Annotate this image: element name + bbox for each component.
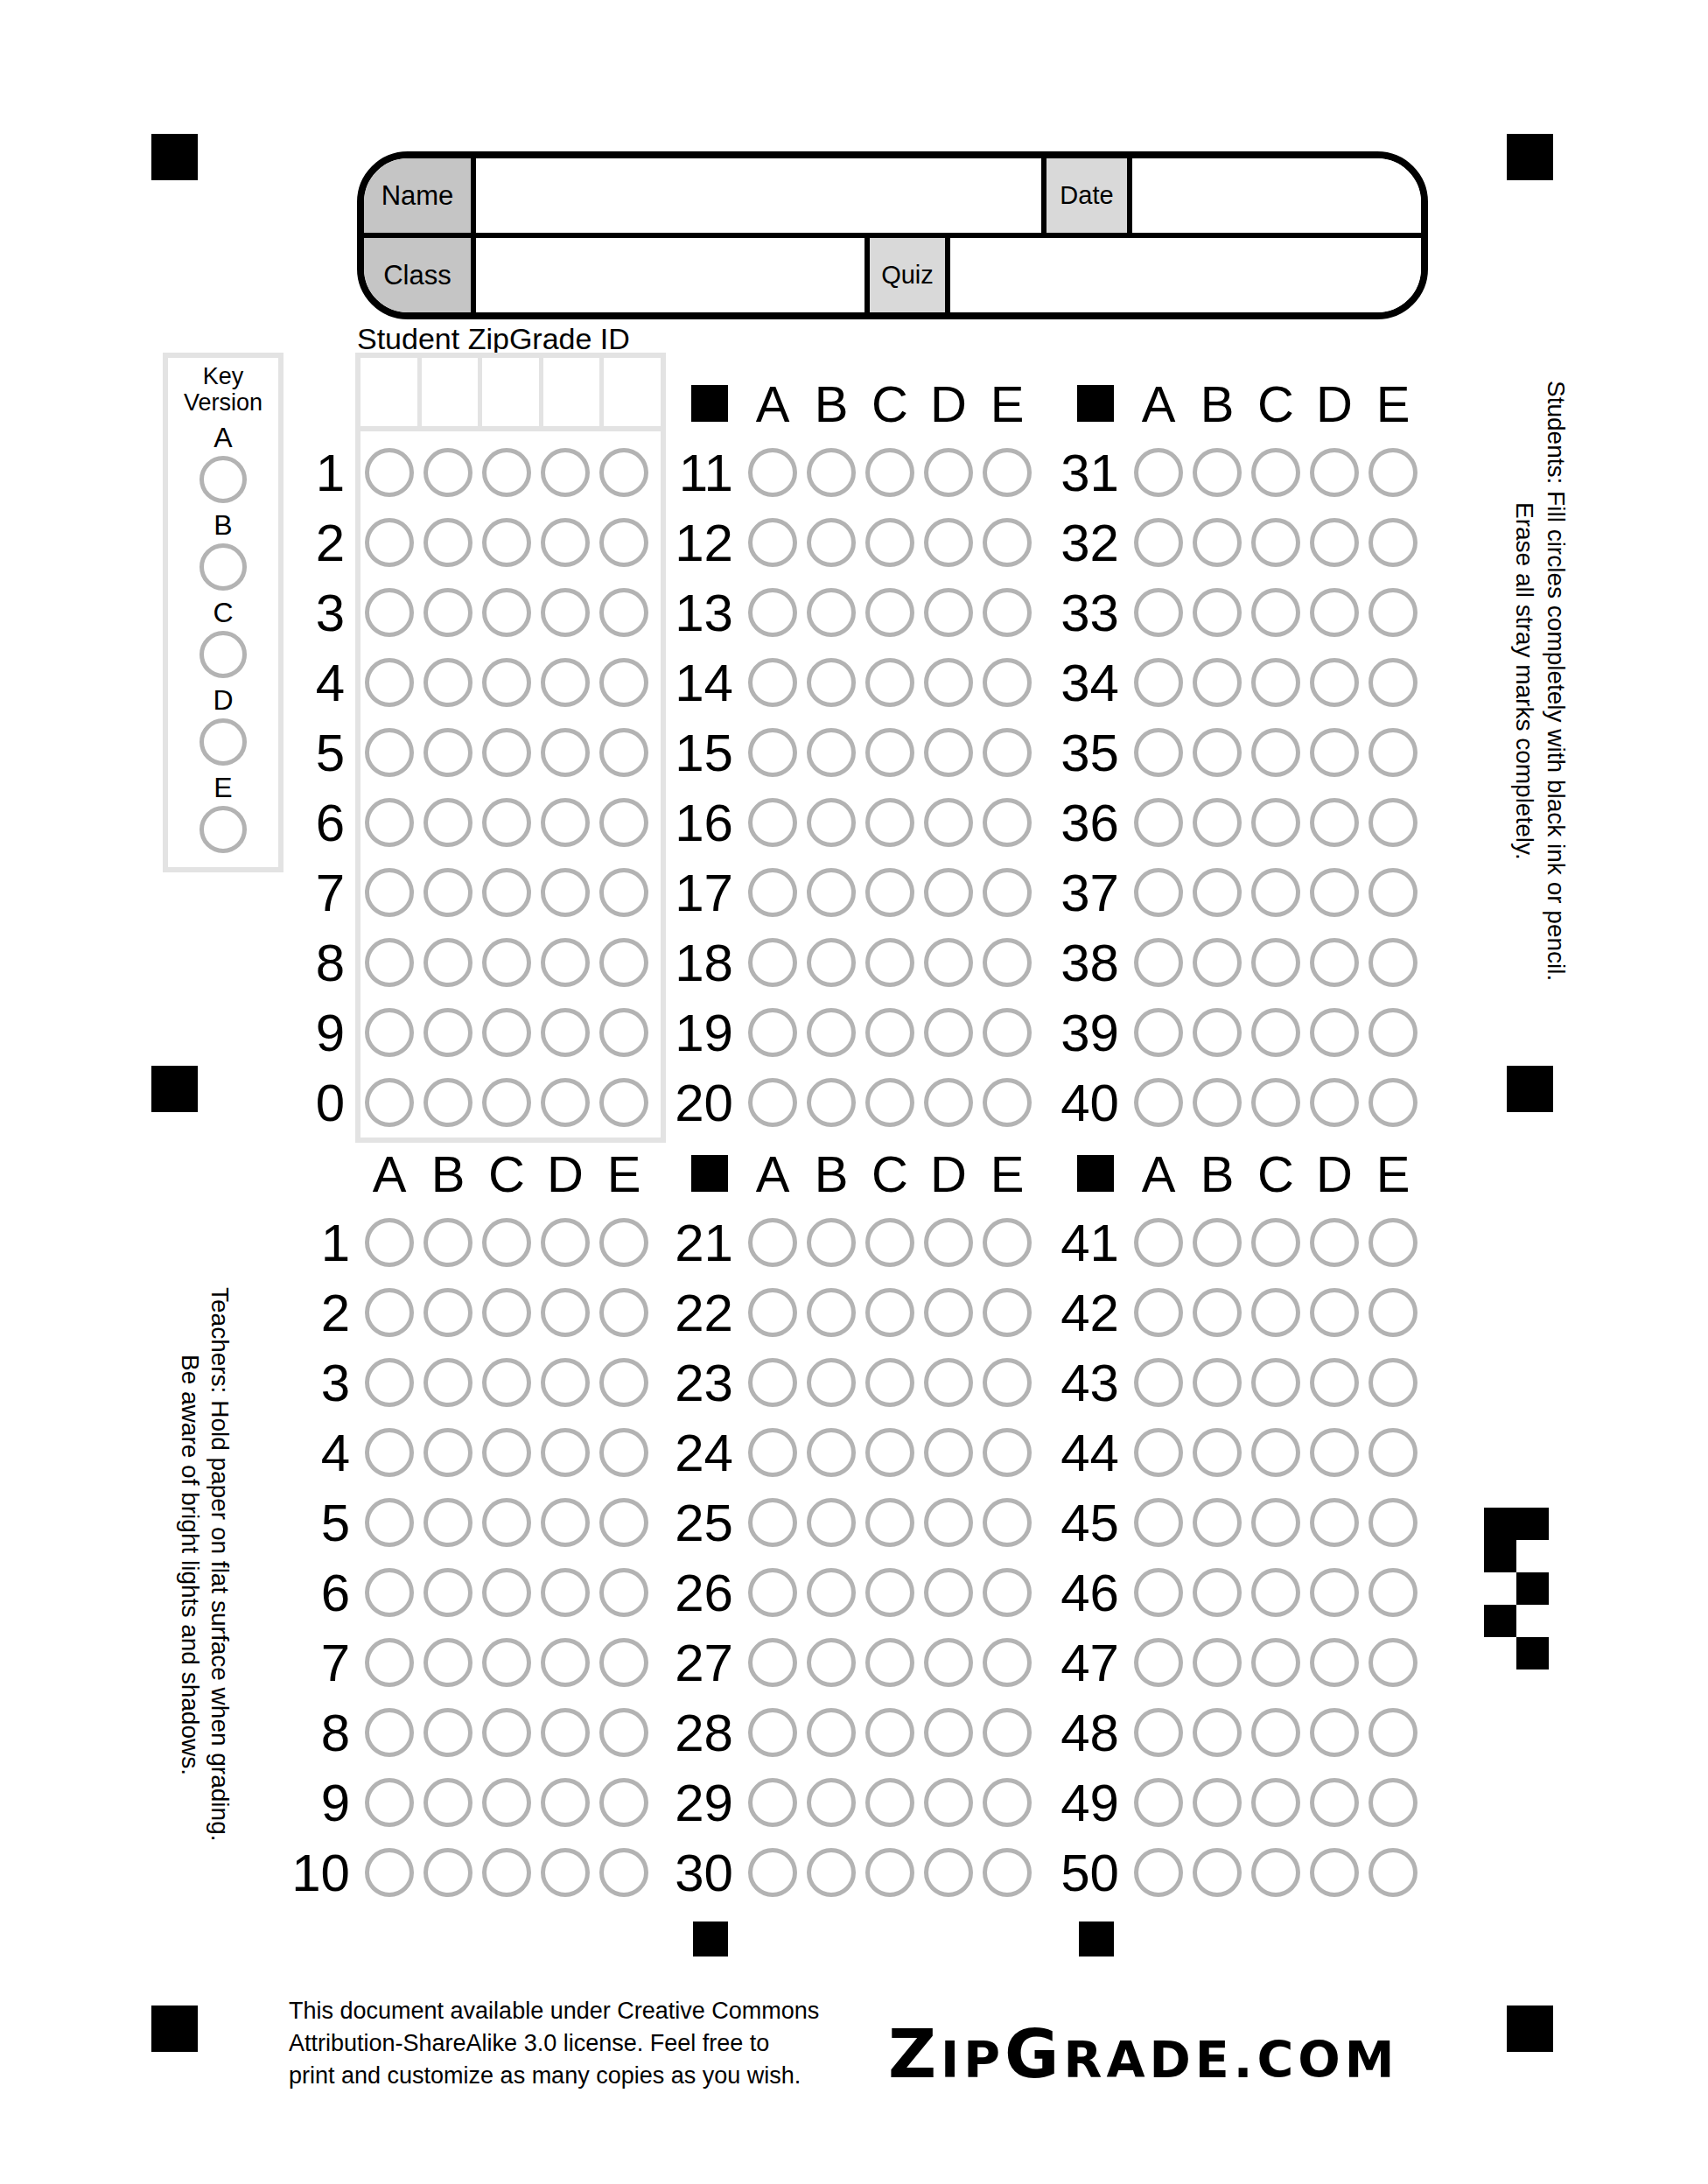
answer-bubble-C[interactable]	[1251, 1288, 1300, 1337]
answer-bubble-E[interactable]	[599, 1568, 648, 1617]
answer-bubble-D[interactable]	[924, 1568, 973, 1617]
answer-bubble-D[interactable]	[541, 1498, 590, 1547]
answer-bubble-C[interactable]	[1251, 1218, 1300, 1267]
answer-bubble-D[interactable]	[1310, 1708, 1359, 1757]
name-input[interactable]	[476, 158, 1041, 233]
answer-bubble-D[interactable]	[924, 1078, 973, 1127]
id-digit-write-box[interactable]	[599, 358, 661, 426]
answer-bubble-C[interactable]	[1251, 868, 1300, 917]
answer-bubble-E[interactable]	[599, 1428, 648, 1477]
answer-bubble-C[interactable]	[865, 1498, 914, 1547]
answer-bubble-A[interactable]	[1134, 1288, 1183, 1337]
answer-bubble-E[interactable]	[1368, 868, 1417, 917]
answer-bubble-B[interactable]	[1193, 1778, 1242, 1827]
answer-bubble-E[interactable]	[599, 1498, 648, 1547]
answer-bubble-E[interactable]	[1368, 728, 1417, 777]
answer-bubble-D[interactable]	[541, 1288, 590, 1337]
answer-bubble-E[interactable]	[1368, 938, 1417, 987]
answer-bubble-A[interactable]	[1134, 1078, 1183, 1127]
answer-bubble-D[interactable]	[541, 1848, 590, 1897]
answer-bubble-B[interactable]	[423, 1778, 472, 1827]
answer-bubble-A[interactable]	[748, 1778, 797, 1827]
answer-bubble-C[interactable]	[1251, 1078, 1300, 1127]
answer-bubble-A[interactable]	[748, 658, 797, 707]
answer-bubble-A[interactable]	[1134, 1778, 1183, 1827]
answer-bubble-C[interactable]	[482, 1288, 531, 1337]
id-digit-bubble[interactable]	[423, 448, 472, 497]
answer-bubble-E[interactable]	[983, 938, 1032, 987]
answer-bubble-D[interactable]	[541, 1708, 590, 1757]
answer-bubble-B[interactable]	[1193, 798, 1242, 847]
id-digit-bubble[interactable]	[599, 518, 648, 567]
id-digit-bubble[interactable]	[423, 1078, 472, 1127]
answer-bubble-C[interactable]	[865, 1218, 914, 1267]
id-digit-bubble[interactable]	[423, 588, 472, 637]
answer-bubble-D[interactable]	[1310, 658, 1359, 707]
id-digit-write-box[interactable]	[478, 358, 539, 426]
answer-bubble-D[interactable]	[1310, 1288, 1359, 1337]
answer-bubble-D[interactable]	[924, 1778, 973, 1827]
class-input[interactable]	[476, 238, 864, 312]
answer-bubble-C[interactable]	[1251, 938, 1300, 987]
answer-bubble-E[interactable]	[983, 518, 1032, 567]
answer-bubble-E[interactable]	[1368, 1288, 1417, 1337]
answer-bubble-A[interactable]	[1134, 1428, 1183, 1477]
id-digit-bubble[interactable]	[541, 798, 590, 847]
answer-bubble-B[interactable]	[1193, 1008, 1242, 1057]
answer-bubble-A[interactable]	[365, 1638, 414, 1687]
answer-bubble-B[interactable]	[423, 1358, 472, 1407]
answer-bubble-B[interactable]	[807, 1078, 856, 1127]
id-digit-bubble[interactable]	[482, 938, 531, 987]
answer-bubble-D[interactable]	[1310, 1008, 1359, 1057]
answer-bubble-B[interactable]	[1193, 658, 1242, 707]
answer-bubble-B[interactable]	[1193, 1288, 1242, 1337]
answer-bubble-E[interactable]	[599, 1848, 648, 1897]
answer-bubble-B[interactable]	[423, 1288, 472, 1337]
answer-bubble-C[interactable]	[482, 1428, 531, 1477]
id-digit-bubble[interactable]	[599, 868, 648, 917]
id-digit-bubble[interactable]	[423, 1008, 472, 1057]
key-version-bubble-C[interactable]	[199, 631, 247, 678]
id-digit-bubble[interactable]	[482, 588, 531, 637]
id-digit-bubble[interactable]	[423, 728, 472, 777]
answer-bubble-B[interactable]	[807, 1778, 856, 1827]
answer-bubble-C[interactable]	[482, 1708, 531, 1757]
answer-bubble-E[interactable]	[599, 1358, 648, 1407]
answer-bubble-B[interactable]	[423, 1498, 472, 1547]
id-digit-bubble[interactable]	[482, 798, 531, 847]
answer-bubble-A[interactable]	[1134, 1008, 1183, 1057]
answer-bubble-E[interactable]	[1368, 798, 1417, 847]
answer-bubble-E[interactable]	[983, 1848, 1032, 1897]
answer-bubble-E[interactable]	[983, 658, 1032, 707]
answer-bubble-B[interactable]	[423, 1568, 472, 1617]
answer-bubble-E[interactable]	[983, 868, 1032, 917]
id-digit-bubble[interactable]	[423, 868, 472, 917]
answer-bubble-D[interactable]	[924, 1358, 973, 1407]
answer-bubble-A[interactable]	[748, 938, 797, 987]
answer-bubble-A[interactable]	[748, 1008, 797, 1057]
id-digit-bubble[interactable]	[365, 518, 414, 567]
id-digit-write-box[interactable]	[539, 358, 600, 426]
answer-bubble-A[interactable]	[1134, 588, 1183, 637]
answer-bubble-B[interactable]	[1193, 1428, 1242, 1477]
answer-bubble-B[interactable]	[1193, 448, 1242, 497]
answer-bubble-D[interactable]	[1310, 798, 1359, 847]
answer-bubble-C[interactable]	[1251, 798, 1300, 847]
answer-bubble-E[interactable]	[1368, 658, 1417, 707]
answer-bubble-E[interactable]	[983, 1638, 1032, 1687]
answer-bubble-A[interactable]	[748, 1638, 797, 1687]
answer-bubble-E[interactable]	[1368, 1638, 1417, 1687]
answer-bubble-A[interactable]	[748, 1708, 797, 1757]
answer-bubble-B[interactable]	[807, 1638, 856, 1687]
answer-bubble-E[interactable]	[983, 1008, 1032, 1057]
answer-bubble-D[interactable]	[1310, 588, 1359, 637]
answer-bubble-D[interactable]	[1310, 1638, 1359, 1687]
answer-bubble-B[interactable]	[423, 1848, 472, 1897]
answer-bubble-B[interactable]	[423, 1708, 472, 1757]
answer-bubble-A[interactable]	[1134, 798, 1183, 847]
id-digit-bubble[interactable]	[365, 588, 414, 637]
answer-bubble-A[interactable]	[365, 1568, 414, 1617]
answer-bubble-D[interactable]	[1310, 1568, 1359, 1617]
answer-bubble-C[interactable]	[865, 518, 914, 567]
answer-bubble-A[interactable]	[748, 518, 797, 567]
answer-bubble-C[interactable]	[865, 868, 914, 917]
answer-bubble-D[interactable]	[924, 1848, 973, 1897]
id-digit-bubble[interactable]	[423, 938, 472, 987]
id-digit-bubble[interactable]	[599, 1078, 648, 1127]
answer-bubble-D[interactable]	[1310, 1428, 1359, 1477]
answer-bubble-C[interactable]	[865, 1008, 914, 1057]
answer-bubble-B[interactable]	[1193, 1358, 1242, 1407]
answer-bubble-A[interactable]	[1134, 868, 1183, 917]
answer-bubble-A[interactable]	[748, 868, 797, 917]
answer-bubble-D[interactable]	[924, 1218, 973, 1267]
answer-bubble-E[interactable]	[983, 1778, 1032, 1827]
answer-bubble-C[interactable]	[865, 1778, 914, 1827]
answer-bubble-B[interactable]	[1193, 938, 1242, 987]
answer-bubble-B[interactable]	[807, 518, 856, 567]
answer-bubble-E[interactable]	[1368, 1428, 1417, 1477]
answer-bubble-B[interactable]	[807, 1568, 856, 1617]
id-digit-bubble[interactable]	[482, 658, 531, 707]
answer-bubble-E[interactable]	[983, 1358, 1032, 1407]
answer-bubble-A[interactable]	[365, 1848, 414, 1897]
answer-bubble-D[interactable]	[924, 1708, 973, 1757]
answer-bubble-D[interactable]	[541, 1778, 590, 1827]
answer-bubble-B[interactable]	[1193, 1218, 1242, 1267]
id-digit-bubble[interactable]	[365, 1078, 414, 1127]
id-digit-bubble[interactable]	[482, 448, 531, 497]
answer-bubble-E[interactable]	[983, 1498, 1032, 1547]
answer-bubble-C[interactable]	[1251, 658, 1300, 707]
id-digit-bubble[interactable]	[365, 448, 414, 497]
answer-bubble-A[interactable]	[748, 1218, 797, 1267]
answer-bubble-A[interactable]	[1134, 938, 1183, 987]
answer-bubble-C[interactable]	[1251, 1568, 1300, 1617]
answer-bubble-A[interactable]	[1134, 1708, 1183, 1757]
id-digit-bubble[interactable]	[541, 1008, 590, 1057]
answer-bubble-D[interactable]	[924, 1008, 973, 1057]
answer-bubble-B[interactable]	[1193, 1568, 1242, 1617]
answer-bubble-B[interactable]	[807, 728, 856, 777]
id-digit-bubble[interactable]	[365, 938, 414, 987]
answer-bubble-D[interactable]	[924, 728, 973, 777]
answer-bubble-E[interactable]	[1368, 1358, 1417, 1407]
answer-bubble-A[interactable]	[748, 1568, 797, 1617]
answer-bubble-A[interactable]	[748, 1848, 797, 1897]
id-digit-bubble[interactable]	[423, 658, 472, 707]
answer-bubble-B[interactable]	[1193, 1498, 1242, 1547]
answer-bubble-B[interactable]	[423, 1218, 472, 1267]
answer-bubble-C[interactable]	[865, 1568, 914, 1617]
id-digit-bubble[interactable]	[423, 798, 472, 847]
answer-bubble-A[interactable]	[1134, 1638, 1183, 1687]
answer-bubble-B[interactable]	[1193, 868, 1242, 917]
answer-bubble-C[interactable]	[865, 728, 914, 777]
id-digit-bubble[interactable]	[541, 938, 590, 987]
answer-bubble-E[interactable]	[983, 1708, 1032, 1757]
answer-bubble-E[interactable]	[983, 1288, 1032, 1337]
answer-bubble-C[interactable]	[865, 1288, 914, 1337]
id-digit-bubble[interactable]	[599, 1008, 648, 1057]
id-digit-bubble[interactable]	[599, 728, 648, 777]
answer-bubble-A[interactable]	[748, 1498, 797, 1547]
answer-bubble-A[interactable]	[1134, 1568, 1183, 1617]
date-input[interactable]	[1132, 158, 1421, 233]
answer-bubble-C[interactable]	[482, 1848, 531, 1897]
answer-bubble-C[interactable]	[865, 448, 914, 497]
answer-bubble-D[interactable]	[1310, 1778, 1359, 1827]
id-digit-bubble[interactable]	[541, 518, 590, 567]
answer-bubble-E[interactable]	[1368, 1568, 1417, 1617]
answer-bubble-D[interactable]	[1310, 1498, 1359, 1547]
answer-bubble-A[interactable]	[748, 728, 797, 777]
answer-bubble-E[interactable]	[983, 588, 1032, 637]
answer-bubble-A[interactable]	[1134, 658, 1183, 707]
answer-bubble-C[interactable]	[1251, 518, 1300, 567]
answer-bubble-E[interactable]	[599, 1218, 648, 1267]
answer-bubble-E[interactable]	[1368, 588, 1417, 637]
answer-bubble-D[interactable]	[924, 1428, 973, 1477]
answer-bubble-A[interactable]	[365, 1358, 414, 1407]
answer-bubble-C[interactable]	[1251, 1848, 1300, 1897]
answer-bubble-D[interactable]	[1310, 1358, 1359, 1407]
answer-bubble-B[interactable]	[1193, 518, 1242, 567]
id-digit-bubble[interactable]	[482, 1078, 531, 1127]
id-digit-write-box[interactable]	[417, 358, 479, 426]
key-version-bubble-B[interactable]	[199, 543, 247, 591]
answer-bubble-B[interactable]	[807, 1358, 856, 1407]
id-digit-bubble[interactable]	[541, 658, 590, 707]
answer-bubble-C[interactable]	[865, 938, 914, 987]
answer-bubble-B[interactable]	[1193, 1638, 1242, 1687]
answer-bubble-A[interactable]	[1134, 1358, 1183, 1407]
answer-bubble-D[interactable]	[924, 518, 973, 567]
answer-bubble-C[interactable]	[482, 1638, 531, 1687]
answer-bubble-A[interactable]	[1134, 1498, 1183, 1547]
answer-bubble-E[interactable]	[1368, 1498, 1417, 1547]
key-version-bubble-A[interactable]	[199, 456, 247, 503]
answer-bubble-B[interactable]	[1193, 1708, 1242, 1757]
answer-bubble-E[interactable]	[983, 728, 1032, 777]
answer-bubble-C[interactable]	[1251, 1428, 1300, 1477]
answer-bubble-B[interactable]	[423, 1428, 472, 1477]
answer-bubble-B[interactable]	[807, 588, 856, 637]
id-digit-bubble[interactable]	[365, 658, 414, 707]
answer-bubble-B[interactable]	[1193, 1848, 1242, 1897]
answer-bubble-C[interactable]	[1251, 1708, 1300, 1757]
answer-bubble-A[interactable]	[748, 798, 797, 847]
answer-bubble-E[interactable]	[983, 1218, 1032, 1267]
answer-bubble-A[interactable]	[748, 588, 797, 637]
answer-bubble-B[interactable]	[807, 1498, 856, 1547]
answer-bubble-B[interactable]	[1193, 1078, 1242, 1127]
answer-bubble-D[interactable]	[924, 1638, 973, 1687]
key-version-bubble-D[interactable]	[199, 718, 247, 766]
answer-bubble-C[interactable]	[1251, 1778, 1300, 1827]
answer-bubble-A[interactable]	[365, 1778, 414, 1827]
answer-bubble-D[interactable]	[541, 1638, 590, 1687]
answer-bubble-E[interactable]	[599, 1708, 648, 1757]
answer-bubble-D[interactable]	[924, 798, 973, 847]
answer-bubble-C[interactable]	[865, 1078, 914, 1127]
answer-bubble-E[interactable]	[599, 1778, 648, 1827]
answer-bubble-D[interactable]	[924, 1288, 973, 1337]
answer-bubble-A[interactable]	[1134, 728, 1183, 777]
answer-bubble-A[interactable]	[365, 1428, 414, 1477]
id-digit-bubble[interactable]	[482, 518, 531, 567]
answer-bubble-C[interactable]	[865, 1358, 914, 1407]
answer-bubble-C[interactable]	[482, 1778, 531, 1827]
answer-bubble-E[interactable]	[1368, 1008, 1417, 1057]
answer-bubble-C[interactable]	[1251, 588, 1300, 637]
answer-bubble-E[interactable]	[1368, 1778, 1417, 1827]
answer-bubble-B[interactable]	[807, 658, 856, 707]
id-digit-bubble[interactable]	[365, 728, 414, 777]
answer-bubble-A[interactable]	[1134, 1218, 1183, 1267]
answer-bubble-D[interactable]	[924, 938, 973, 987]
answer-bubble-B[interactable]	[807, 1848, 856, 1897]
answer-bubble-D[interactable]	[924, 1498, 973, 1547]
answer-bubble-C[interactable]	[865, 798, 914, 847]
answer-bubble-A[interactable]	[365, 1498, 414, 1547]
key-version-bubble-E[interactable]	[199, 806, 247, 853]
answer-bubble-B[interactable]	[807, 1708, 856, 1757]
answer-bubble-D[interactable]	[1310, 938, 1359, 987]
answer-bubble-B[interactable]	[807, 448, 856, 497]
answer-bubble-D[interactable]	[1310, 448, 1359, 497]
id-digit-bubble[interactable]	[541, 868, 590, 917]
answer-bubble-C[interactable]	[1251, 448, 1300, 497]
answer-bubble-D[interactable]	[1310, 1078, 1359, 1127]
id-digit-bubble[interactable]	[599, 798, 648, 847]
answer-bubble-C[interactable]	[482, 1218, 531, 1267]
answer-bubble-D[interactable]	[1310, 728, 1359, 777]
id-digit-bubble[interactable]	[541, 448, 590, 497]
answer-bubble-E[interactable]	[983, 798, 1032, 847]
id-digit-bubble[interactable]	[482, 728, 531, 777]
answer-bubble-C[interactable]	[1251, 1358, 1300, 1407]
answer-bubble-D[interactable]	[924, 588, 973, 637]
answer-bubble-A[interactable]	[365, 1708, 414, 1757]
answer-bubble-A[interactable]	[748, 1358, 797, 1407]
answer-bubble-C[interactable]	[1251, 728, 1300, 777]
answer-bubble-C[interactable]	[865, 1428, 914, 1477]
answer-bubble-B[interactable]	[807, 1428, 856, 1477]
answer-bubble-C[interactable]	[482, 1568, 531, 1617]
answer-bubble-B[interactable]	[1193, 728, 1242, 777]
answer-bubble-A[interactable]	[1134, 448, 1183, 497]
answer-bubble-B[interactable]	[807, 868, 856, 917]
answer-bubble-E[interactable]	[1368, 518, 1417, 567]
id-digit-bubble[interactable]	[482, 1008, 531, 1057]
answer-bubble-E[interactable]	[983, 1078, 1032, 1127]
answer-bubble-A[interactable]	[748, 1428, 797, 1477]
id-digit-bubble[interactable]	[541, 588, 590, 637]
answer-bubble-E[interactable]	[599, 1288, 648, 1337]
answer-bubble-C[interactable]	[1251, 1008, 1300, 1057]
answer-bubble-C[interactable]	[482, 1498, 531, 1547]
answer-bubble-D[interactable]	[1310, 518, 1359, 567]
answer-bubble-E[interactable]	[1368, 1078, 1417, 1127]
answer-bubble-C[interactable]	[865, 1638, 914, 1687]
answer-bubble-E[interactable]	[1368, 448, 1417, 497]
id-digit-write-box[interactable]	[360, 358, 417, 426]
id-digit-bubble[interactable]	[365, 868, 414, 917]
answer-bubble-A[interactable]	[1134, 1848, 1183, 1897]
answer-bubble-A[interactable]	[365, 1218, 414, 1267]
quiz-input[interactable]	[950, 238, 1421, 312]
answer-bubble-C[interactable]	[865, 1708, 914, 1757]
answer-bubble-A[interactable]	[748, 448, 797, 497]
id-digit-bubble[interactable]	[599, 658, 648, 707]
answer-bubble-E[interactable]	[983, 1568, 1032, 1617]
answer-bubble-A[interactable]	[748, 1288, 797, 1337]
answer-bubble-C[interactable]	[1251, 1638, 1300, 1687]
answer-bubble-B[interactable]	[807, 798, 856, 847]
answer-bubble-C[interactable]	[865, 1848, 914, 1897]
answer-bubble-D[interactable]	[541, 1218, 590, 1267]
answer-bubble-E[interactable]	[1368, 1848, 1417, 1897]
id-digit-bubble[interactable]	[599, 588, 648, 637]
id-digit-bubble[interactable]	[599, 938, 648, 987]
answer-bubble-D[interactable]	[1310, 868, 1359, 917]
answer-bubble-B[interactable]	[807, 1288, 856, 1337]
id-digit-bubble[interactable]	[541, 728, 590, 777]
answer-bubble-D[interactable]	[541, 1568, 590, 1617]
id-digit-bubble[interactable]	[541, 1078, 590, 1127]
answer-bubble-B[interactable]	[423, 1638, 472, 1687]
answer-bubble-D[interactable]	[541, 1358, 590, 1407]
answer-bubble-B[interactable]	[1193, 588, 1242, 637]
answer-bubble-D[interactable]	[541, 1428, 590, 1477]
id-digit-bubble[interactable]	[365, 1008, 414, 1057]
answer-bubble-A[interactable]	[1134, 518, 1183, 567]
answer-bubble-E[interactable]	[983, 1428, 1032, 1477]
answer-bubble-D[interactable]	[924, 448, 973, 497]
answer-bubble-C[interactable]	[482, 1358, 531, 1407]
answer-bubble-B[interactable]	[807, 1218, 856, 1267]
answer-bubble-E[interactable]	[1368, 1218, 1417, 1267]
answer-bubble-A[interactable]	[748, 1078, 797, 1127]
answer-bubble-D[interactable]	[924, 658, 973, 707]
id-digit-bubble[interactable]	[423, 518, 472, 567]
id-digit-bubble[interactable]	[365, 798, 414, 847]
